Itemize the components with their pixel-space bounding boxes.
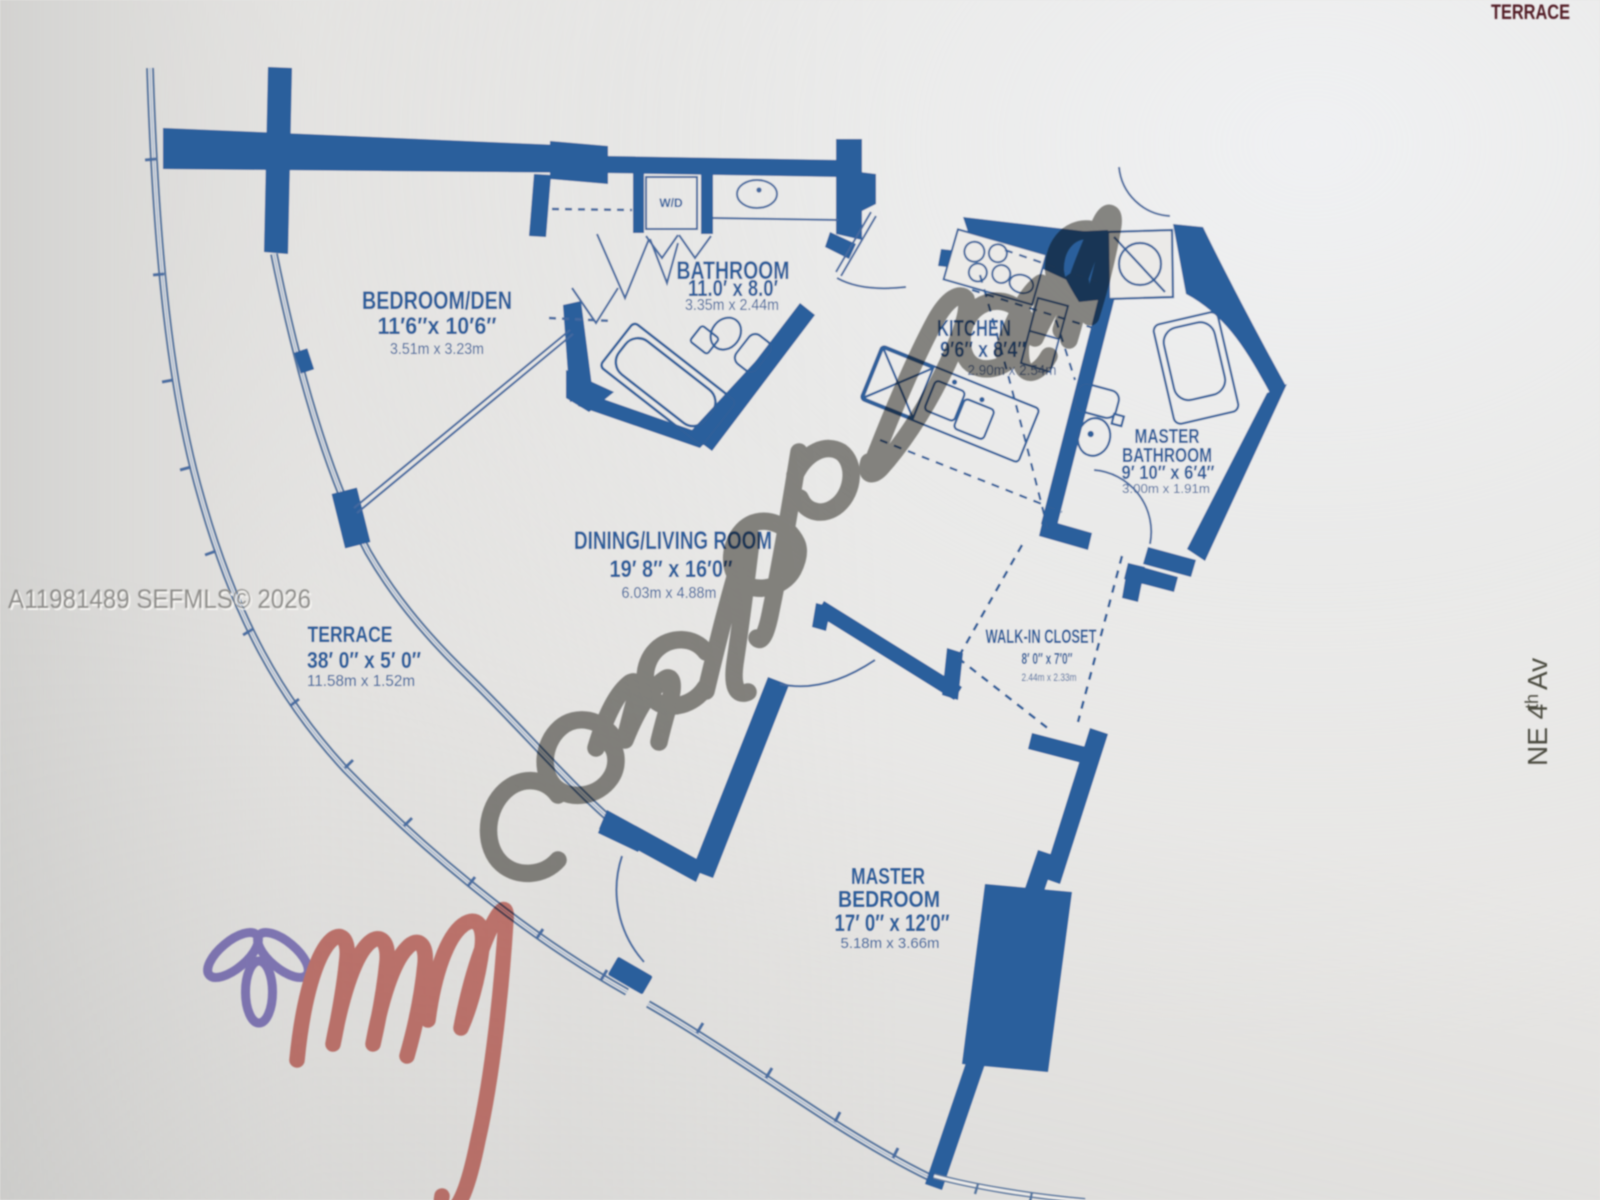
svg-text:2.44m x 2.33m: 2.44m x 2.33m — [1022, 672, 1077, 684]
svg-text:th: th — [1522, 694, 1542, 709]
svg-text:TERRACE: TERRACE — [308, 622, 393, 647]
svg-text:TERRACE: TERRACE — [1491, 1, 1570, 24]
svg-text:Av: Av — [1522, 658, 1553, 690]
svg-text:3.51m x 3.23m: 3.51m x 3.23m — [390, 341, 484, 358]
svg-text:3.35m x 2.44m: 3.35m x 2.44m — [685, 297, 779, 314]
svg-text:W/D: W/D — [659, 196, 683, 210]
svg-text:BEDROOM: BEDROOM — [838, 886, 940, 912]
svg-text:8′ 0″ x 7′0″: 8′ 0″ x 7′0″ — [1022, 651, 1073, 668]
svg-text:17′ 0″ x 12′0″: 17′ 0″ x 12′0″ — [835, 910, 950, 937]
svg-text:NE 4: NE 4 — [1522, 704, 1553, 766]
svg-text:WALK-IN CLOSET: WALK-IN CLOSET — [986, 627, 1097, 648]
svg-text:BEDROOM/DEN: BEDROOM/DEN — [362, 287, 512, 315]
svg-text:11.58m x 1.52m: 11.58m x 1.52m — [307, 673, 415, 690]
svg-text:5.18m x 3.66m: 5.18m x 3.66m — [841, 935, 940, 952]
svg-text:6.03m x 4.88m: 6.03m x 4.88m — [622, 585, 717, 602]
svg-text:38′ 0″ x 5′ 0″: 38′ 0″ x 5′ 0″ — [307, 647, 421, 673]
svg-text:11′6″x 10′6″: 11′6″x 10′6″ — [378, 313, 497, 340]
svg-text:A11981489 SEFMLS© 2026: A11981489 SEFMLS© 2026 — [8, 584, 311, 614]
svg-text:3.00m x 1.91m: 3.00m x 1.91m — [1122, 481, 1210, 496]
svg-text:19′ 8″ x 16′0″: 19′ 8″ x 16′0″ — [610, 556, 733, 583]
